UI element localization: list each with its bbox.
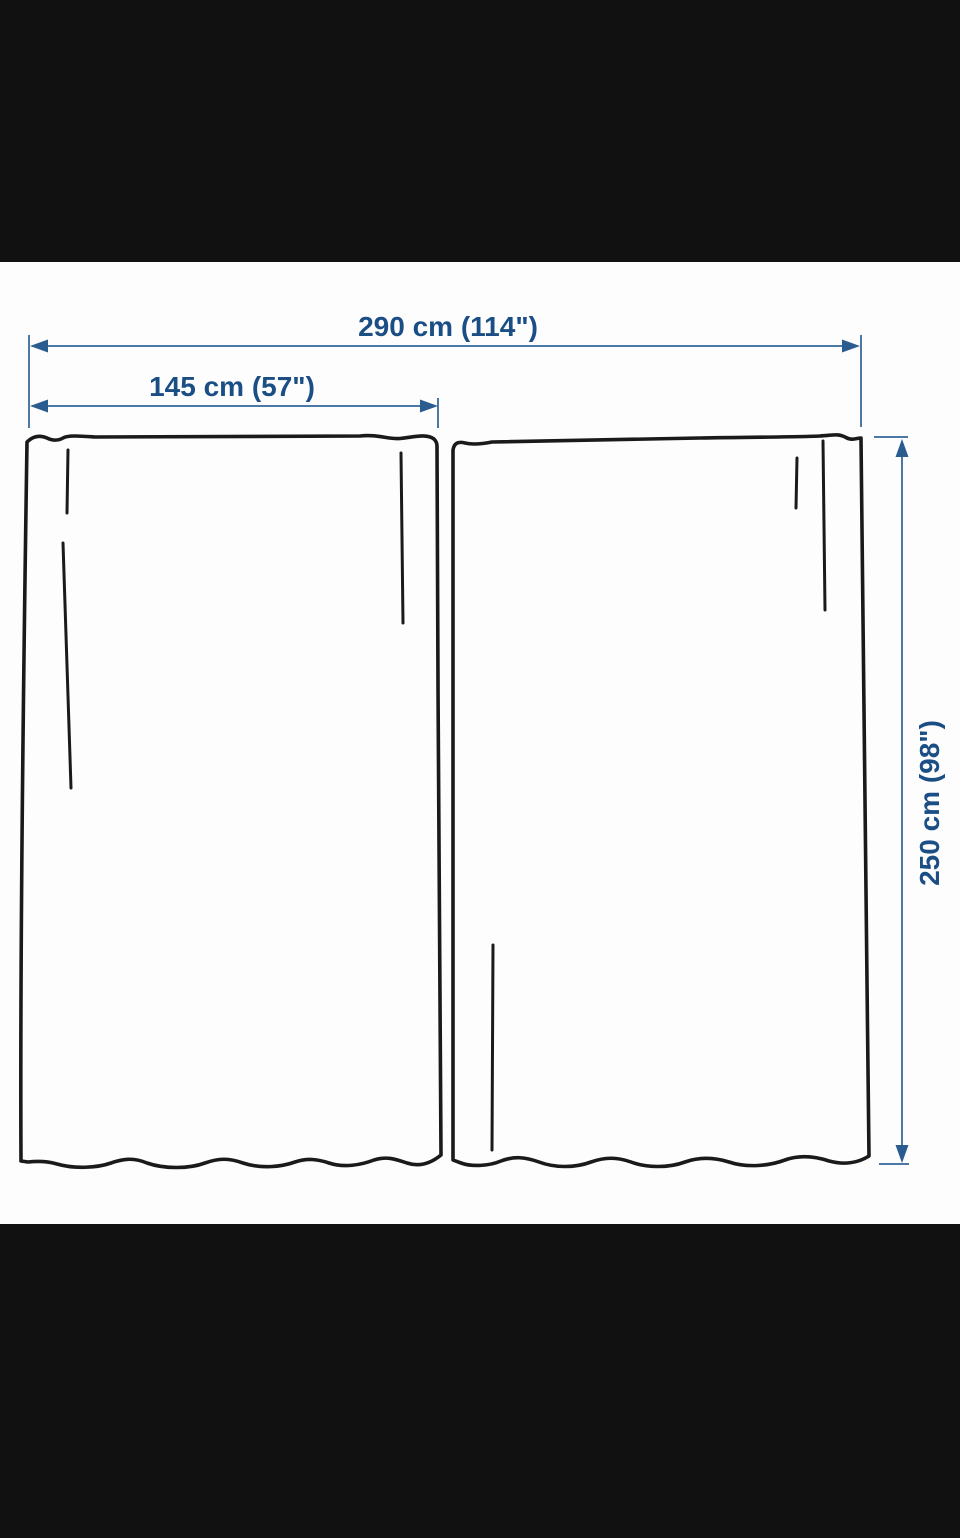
diagram-canvas: 290 cm (114") 145 cm (57") 250 cm (98"): [0, 262, 960, 1224]
bottom-letterbox: [0, 1224, 960, 1538]
arrowhead-total-width-left: [30, 340, 48, 353]
arrowhead-height-bottom: [896, 1145, 909, 1163]
arrowhead-panel-width-right: [420, 400, 438, 413]
panel-width-label: 145 cm (57"): [149, 371, 315, 402]
arrowhead-height-top: [896, 439, 909, 457]
fold-line-right-1: [796, 458, 797, 508]
total-width-label: 290 cm (114"): [358, 311, 538, 342]
curtain-panel-right: [453, 435, 869, 1167]
fold-line-left-1: [67, 450, 68, 513]
arrowhead-total-width-right: [842, 340, 860, 353]
fold-line-right-3: [492, 945, 493, 1150]
top-letterbox: [0, 0, 960, 262]
curtain-panel-left: [21, 436, 441, 1168]
arrowhead-panel-width-left: [30, 400, 48, 413]
fold-line-right-2: [823, 441, 825, 610]
curtain-panels-group: [21, 435, 869, 1168]
screenshot-stage: 290 cm (114") 145 cm (57") 250 cm (98"): [0, 0, 960, 1538]
fold-line-left-3: [401, 453, 403, 623]
panel-height-label: 250 cm (98"): [914, 720, 945, 886]
curtain-dimension-diagram: 290 cm (114") 145 cm (57") 250 cm (98"): [0, 262, 960, 1224]
